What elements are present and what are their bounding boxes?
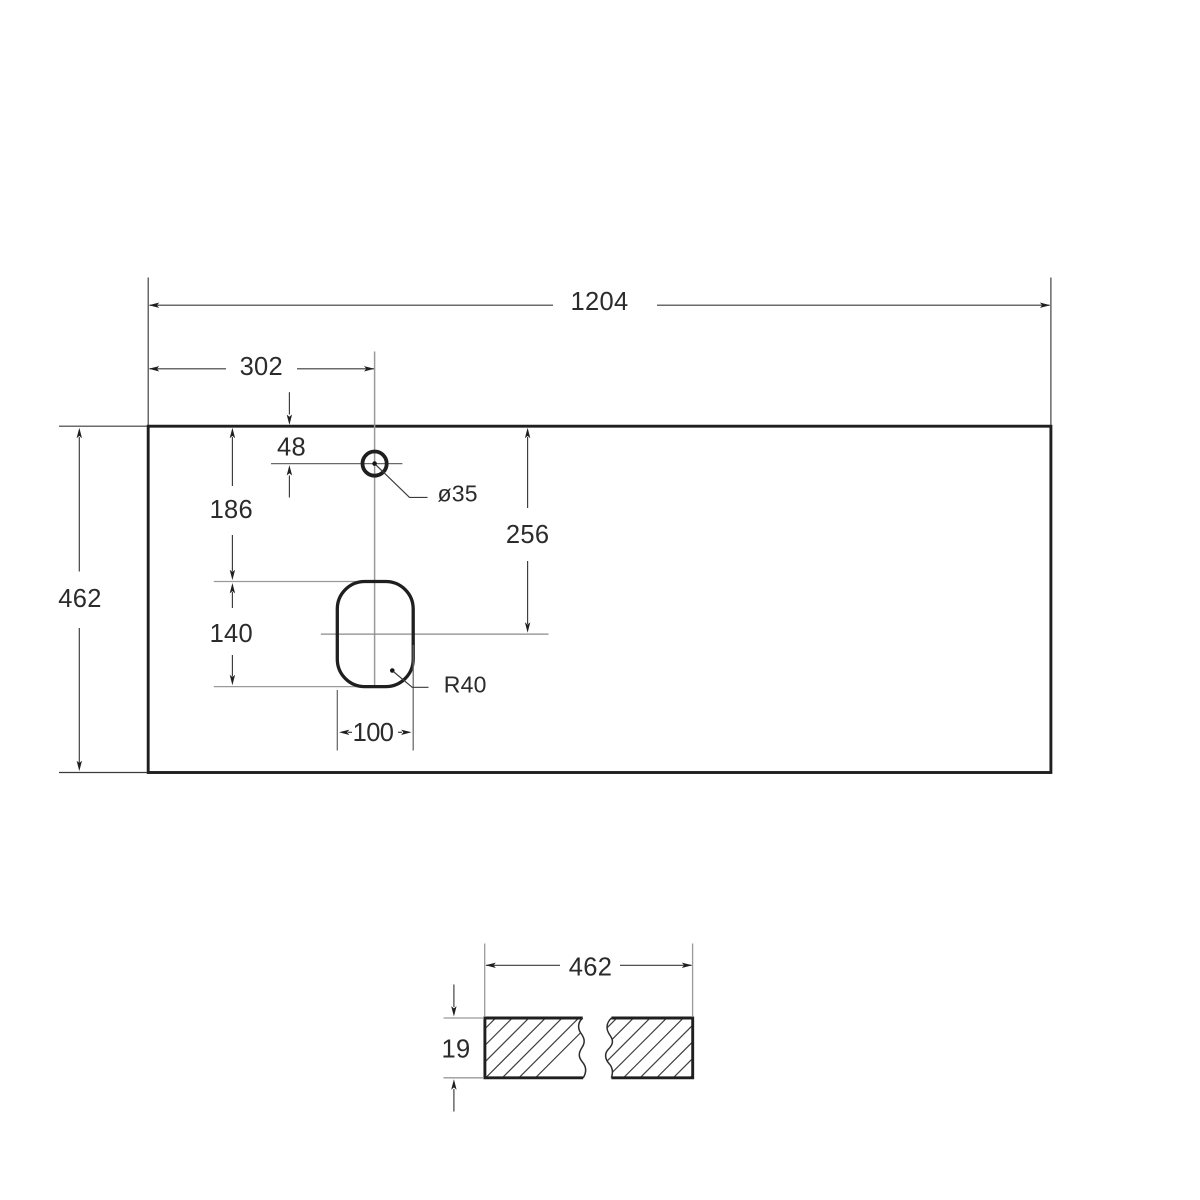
svg-text:19: 19 [442, 1035, 471, 1063]
svg-text:140: 140 [210, 620, 253, 648]
svg-text:462: 462 [569, 953, 612, 981]
svg-text:R40: R40 [444, 672, 487, 698]
svg-text:462: 462 [58, 585, 101, 613]
svg-text:302: 302 [240, 353, 283, 381]
svg-text:100: 100 [353, 719, 394, 747]
svg-text:186: 186 [210, 496, 253, 524]
svg-text:48: 48 [277, 433, 306, 461]
svg-text:1204: 1204 [571, 288, 629, 316]
svg-text:256: 256 [506, 521, 549, 549]
svg-text:ø35: ø35 [438, 481, 478, 507]
